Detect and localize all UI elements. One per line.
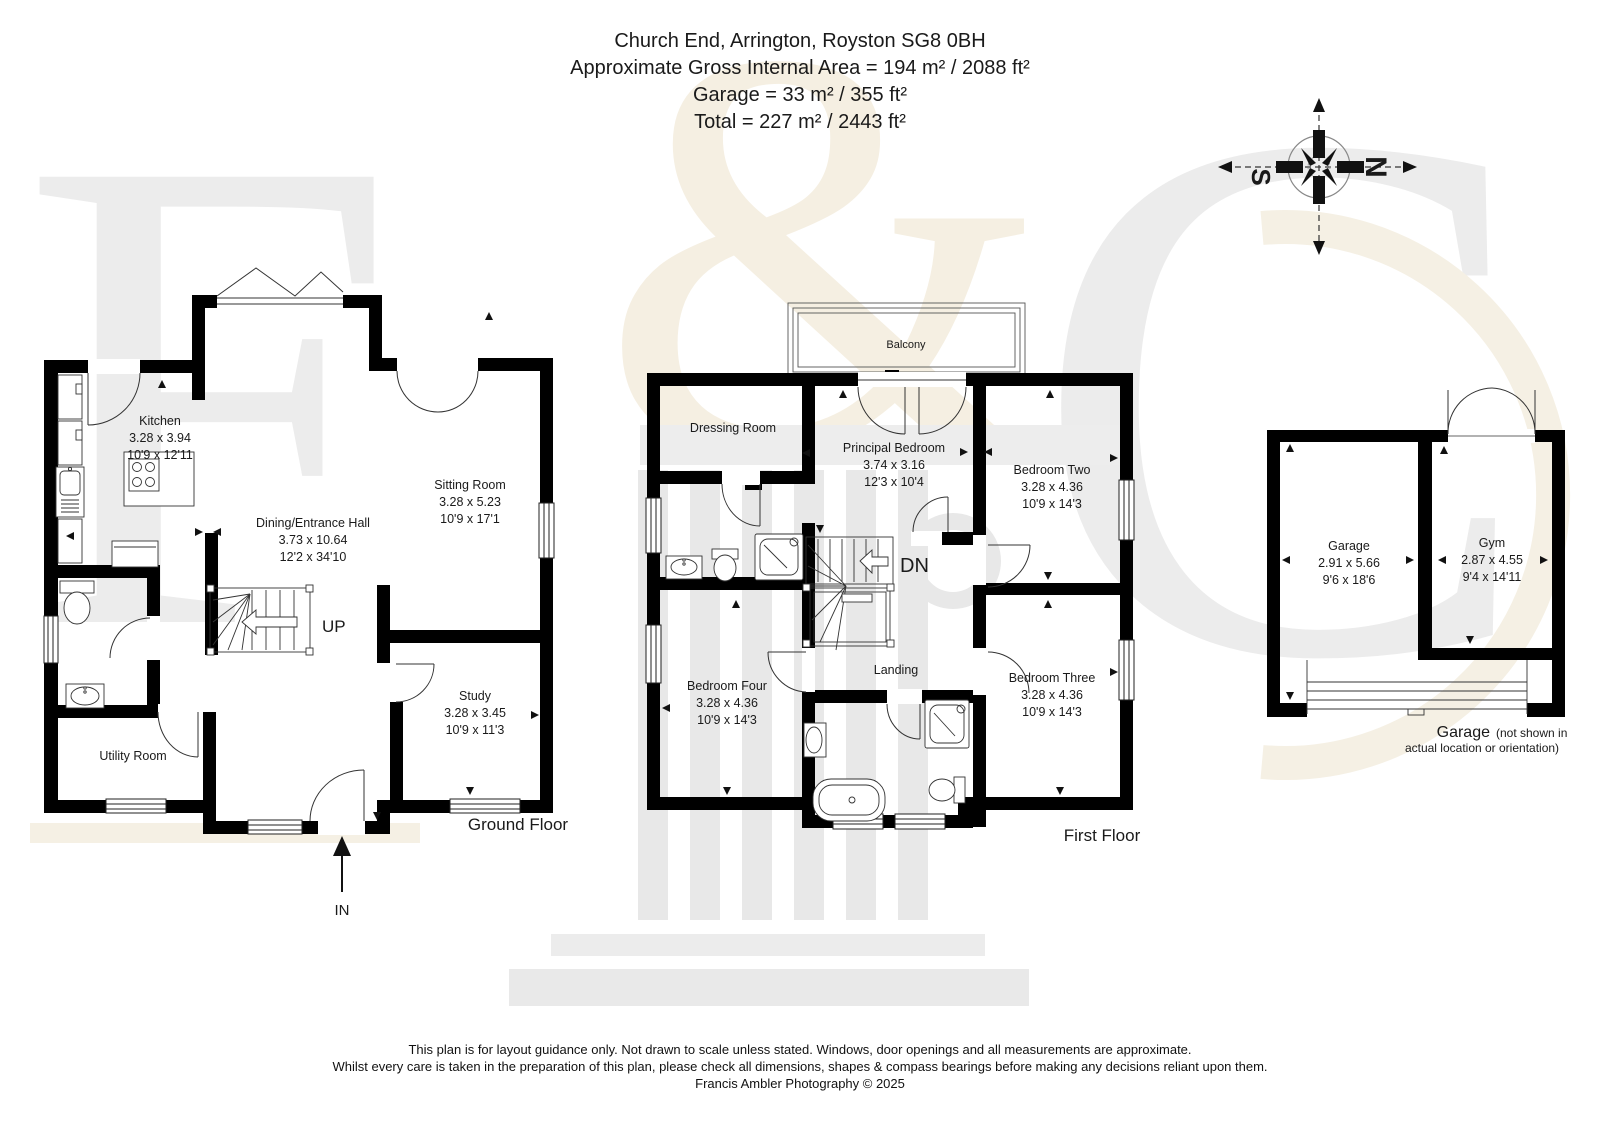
entrance-arrow-icon <box>333 836 351 892</box>
shower-icon <box>925 700 969 748</box>
kitchen-label: Kitchen <box>139 414 181 428</box>
toilet-icon <box>60 581 94 593</box>
gym-dims-metric: 2.87 x 4.55 <box>1461 553 1523 567</box>
dining-hall-dims-imperial: 12'2 x 34'10 <box>280 550 347 564</box>
title-block: Church End, Arrington, Royston SG8 0BH A… <box>0 28 1600 136</box>
sitting-room-label: Sitting Room <box>434 478 506 492</box>
watermark-cream-swoosh <box>1262 227 1553 763</box>
garage-plan: Garage 2.91 x 5.66 9'6 x 18'6 Gym 2.87 x… <box>1267 388 1567 755</box>
bedroom-three-label: Bedroom Three <box>1009 671 1096 685</box>
entrance-in-label: IN <box>335 902 350 919</box>
garage-dims-imperial: 9'6 x 18'6 <box>1323 573 1376 587</box>
bedroom-three-dims-metric: 3.28 x 4.36 <box>1021 688 1083 702</box>
compass-arrow-left <box>1218 161 1232 173</box>
bedroom-two-dims-imperial: 10'9 x 14'3 <box>1022 497 1082 511</box>
first-floor-plan: Balcony Dressing Room Principal Bedroom … <box>646 303 1141 845</box>
ensuite-fixtures <box>666 534 803 581</box>
bathroom-fixtures <box>804 700 969 821</box>
principal-bedroom-label: Principal Bedroom <box>843 441 945 455</box>
disclaimer-line-1: This plan is for layout guidance only. N… <box>0 1041 1600 1058</box>
dining-hall-label: Dining/Entrance Hall <box>256 516 370 530</box>
bedroom-two-dims-metric: 3.28 x 4.36 <box>1021 480 1083 494</box>
sitting-room-dims-imperial: 10'9 x 17'1 <box>440 512 500 526</box>
bedroom-two-label: Bedroom Two <box>1014 463 1091 477</box>
garage-caption-note2: actual location or orientation) <box>1405 741 1559 755</box>
copyright-line: Francis Ambler Photography © 2025 <box>0 1075 1600 1092</box>
principal-bedroom-dims-imperial: 12'3 x 10'4 <box>864 475 924 489</box>
landing-label: Landing <box>874 663 919 677</box>
floorplan-page: F & C Church End, Arrington, Royston SG8… <box>0 0 1600 1132</box>
bedroom-four-dims-metric: 3.28 x 4.36 <box>696 696 758 710</box>
garage-caption-title: Garage <box>1437 724 1490 741</box>
stairs-down <box>803 537 894 650</box>
study-label: Study <box>459 689 492 703</box>
gross-area-line: Approximate Gross Internal Area = 194 m²… <box>0 55 1600 82</box>
dressing-room-label: Dressing Room <box>690 421 776 435</box>
stairs-up <box>207 585 313 655</box>
sitting-room-dims-metric: 3.28 x 5.23 <box>439 495 501 509</box>
first-floor-label: First Floor <box>1064 826 1141 845</box>
disclaimer-line-2: Whilst every care is taken in the prepar… <box>0 1058 1600 1075</box>
stairs-down-label: DN <box>900 555 929 577</box>
kitchen-dims-imperial: 10'9 x 12'11 <box>127 448 193 462</box>
study-dims-metric: 3.28 x 3.45 <box>444 706 506 720</box>
toilet-icon <box>954 777 965 803</box>
garage-caption-note1: (not shown in <box>1496 726 1567 740</box>
dining-hall-dims-metric: 3.73 x 10.64 <box>279 533 348 547</box>
bedroom-four-label: Bedroom Four <box>687 679 767 693</box>
bedroom-four-dims-imperial: 10'9 x 14'3 <box>697 713 757 727</box>
utility-room-label: Utility Room <box>99 749 166 763</box>
ground-floor-label: Ground Floor <box>468 815 568 834</box>
gym-label: Gym <box>1479 536 1505 550</box>
gym-dims-imperial: 9'4 x 14'11 <box>1463 570 1522 584</box>
disclaimer-block: This plan is for layout guidance only. N… <box>0 1041 1600 1092</box>
ground-floor-plan: Kitchen 3.28 x 3.94 10'9 x 12'11 Dining/… <box>44 268 568 919</box>
compass-arrow-down <box>1313 241 1325 255</box>
compass-arrow-right <box>1403 161 1417 173</box>
first-floor-windows <box>646 480 1134 829</box>
total-area-line: Total = 227 m² / 2443 ft² <box>0 109 1600 136</box>
stairs-up-label: UP <box>322 617 346 636</box>
compass-north-label: N <box>1359 156 1392 178</box>
garage-area-line: Garage = 33 m² / 355 ft² <box>0 82 1600 109</box>
kitchen-dims-metric: 3.28 x 3.94 <box>129 431 191 445</box>
garage-dims-metric: 2.91 x 5.66 <box>1318 556 1380 570</box>
principal-bedroom-dims-metric: 3.74 x 3.16 <box>863 458 925 472</box>
address-line: Church End, Arrington, Royston SG8 0BH <box>0 28 1600 55</box>
bedroom-three-dims-imperial: 10'9 x 14'3 <box>1022 705 1082 719</box>
garage-label: Garage <box>1328 539 1370 553</box>
kitchen-appliance <box>112 541 158 567</box>
compass-south-label: S <box>1246 168 1276 185</box>
study-dims-imperial: 10'9 x 11'3 <box>446 723 505 737</box>
wc-fixtures <box>60 581 104 708</box>
balcony-label: Balcony <box>886 339 926 351</box>
